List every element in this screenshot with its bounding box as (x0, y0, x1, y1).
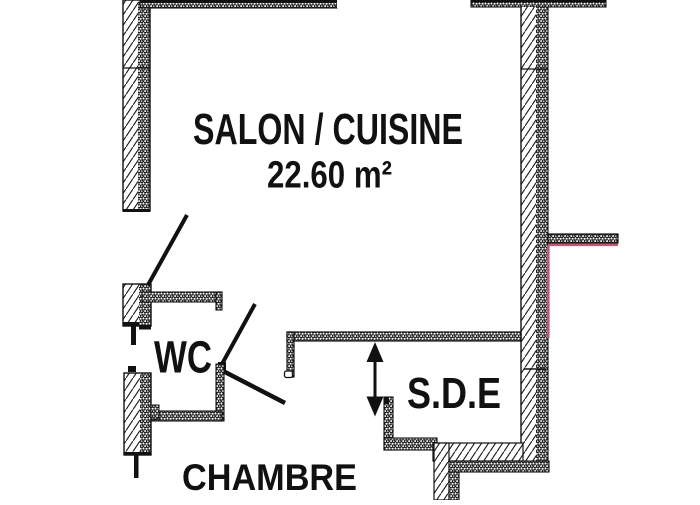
svg-text:S.D.E: S.D.E (407, 370, 501, 418)
svg-text:WC: WC (154, 331, 212, 382)
svg-text:CHAMBRE: CHAMBRE (182, 457, 357, 498)
svg-text:SALON / CUISINE: SALON / CUISINE (193, 106, 463, 154)
svg-text:22.60 m²: 22.60 m² (267, 155, 392, 197)
